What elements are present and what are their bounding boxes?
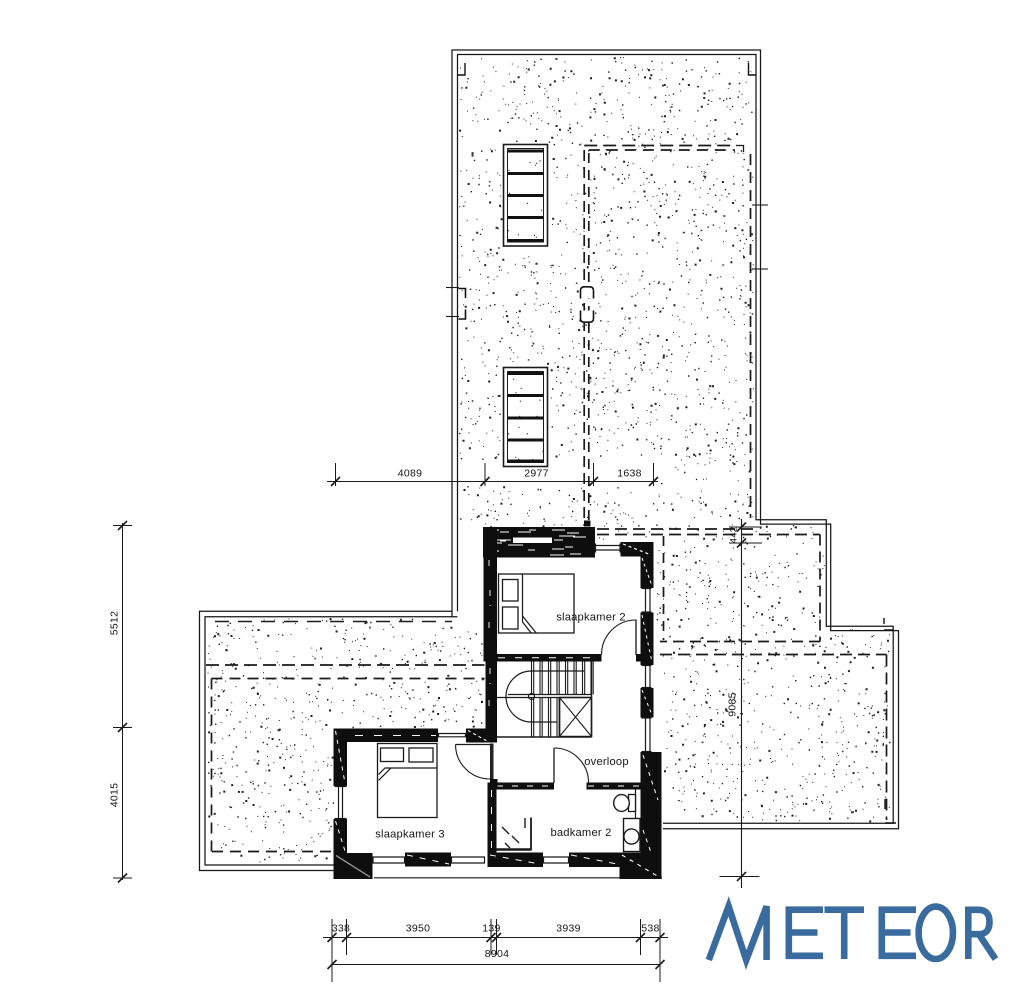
svg-text:overloop: overloop <box>584 756 629 768</box>
svg-text:4089: 4089 <box>398 468 423 480</box>
svg-text:442: 442 <box>729 527 740 544</box>
svg-text:3939: 3939 <box>556 923 581 935</box>
svg-text:338: 338 <box>332 923 350 935</box>
svg-text:9085: 9085 <box>727 692 739 717</box>
svg-text:538: 538 <box>641 923 659 935</box>
svg-text:8904: 8904 <box>485 948 510 960</box>
svg-text:4015: 4015 <box>109 783 121 808</box>
svg-text:2977: 2977 <box>524 468 549 480</box>
svg-text:139: 139 <box>482 923 500 935</box>
svg-text:1638: 1638 <box>617 468 642 480</box>
svg-text:3950: 3950 <box>406 923 431 935</box>
svg-text:5512: 5512 <box>109 611 121 636</box>
svg-text:slaapkamer 2: slaapkamer 2 <box>556 612 626 624</box>
svg-text:slaapkamer 3: slaapkamer 3 <box>375 829 445 841</box>
svg-text:badkamer 2: badkamer 2 <box>550 827 611 839</box>
